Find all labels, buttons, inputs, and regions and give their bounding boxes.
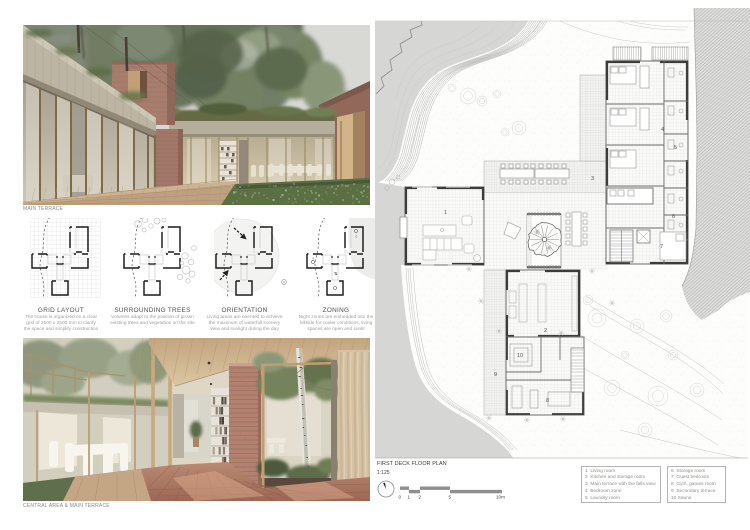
svg-text:9: 9 — [494, 372, 497, 378]
svg-text:3: 3 — [591, 176, 594, 182]
svg-text:1: 1 — [444, 210, 447, 216]
svg-text:5: 5 — [449, 495, 452, 500]
svg-text:☾: ☾ — [355, 234, 359, 239]
svg-text:10: 10 — [517, 353, 523, 359]
svg-text:⇅: ⇅ — [334, 271, 338, 276]
svg-text:6: 6 — [672, 214, 675, 220]
svg-text:1: 1 — [408, 495, 411, 500]
svg-text:8: 8 — [546, 398, 549, 404]
svg-text:7: 7 — [660, 244, 663, 250]
svg-text:10m: 10m — [496, 495, 505, 500]
svg-text:4: 4 — [661, 127, 664, 133]
svg-text:2: 2 — [419, 495, 422, 500]
svg-text:0: 0 — [399, 495, 402, 500]
svg-text:2: 2 — [544, 328, 547, 334]
svg-text:5: 5 — [674, 145, 677, 151]
